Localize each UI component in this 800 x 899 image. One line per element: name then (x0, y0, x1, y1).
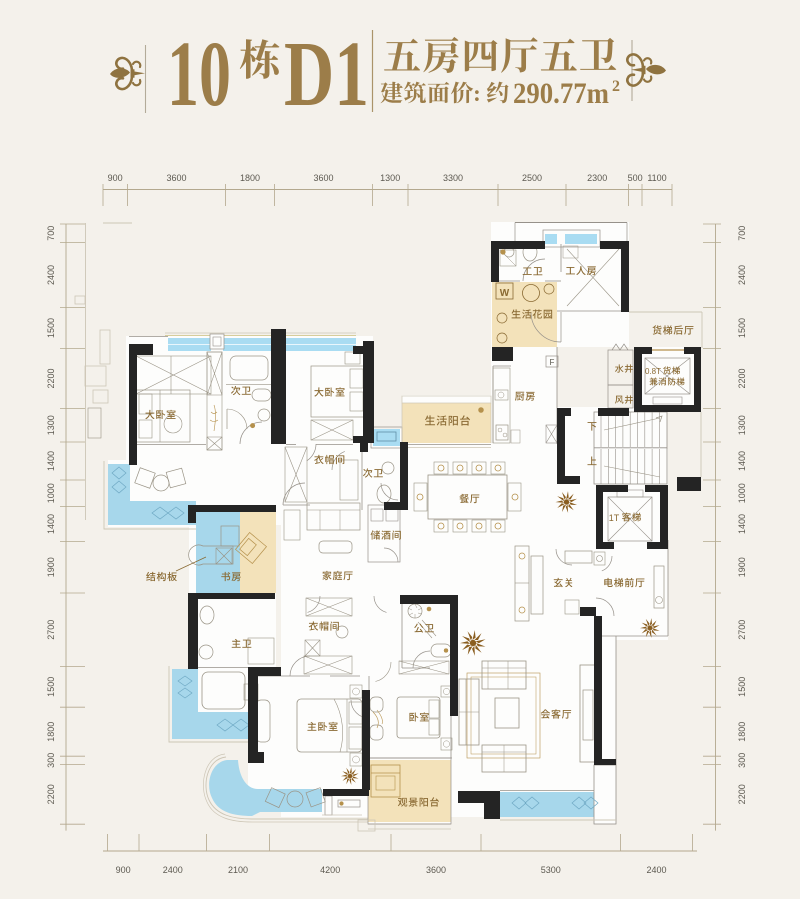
svg-text:1800: 1800 (737, 722, 747, 742)
svg-text:290.77m: 290.77m (513, 77, 609, 110)
svg-text:1300: 1300 (380, 173, 400, 183)
svg-text::: : (473, 81, 481, 106)
svg-text:1300: 1300 (46, 415, 56, 435)
svg-text:2200: 2200 (46, 784, 56, 804)
svg-text:2400: 2400 (163, 865, 183, 875)
svg-text:1T: 1T (609, 513, 620, 523)
svg-text:1500: 1500 (737, 318, 747, 338)
svg-text:2700: 2700 (737, 620, 747, 640)
svg-text:900: 900 (116, 865, 131, 875)
svg-text:3600: 3600 (313, 173, 333, 183)
svg-text:1500: 1500 (46, 318, 56, 338)
svg-text:4200: 4200 (320, 865, 340, 875)
svg-text:5300: 5300 (541, 865, 561, 875)
svg-text:2: 2 (612, 78, 620, 95)
svg-text:2200: 2200 (737, 368, 747, 388)
svg-text:1000: 1000 (737, 483, 747, 503)
svg-text:500: 500 (628, 173, 643, 183)
svg-text:700: 700 (46, 226, 56, 241)
svg-text:900: 900 (108, 173, 123, 183)
svg-text:3300: 3300 (443, 173, 463, 183)
svg-text:300: 300 (737, 753, 747, 768)
svg-text:W: W (500, 288, 510, 299)
svg-text:2400: 2400 (646, 865, 666, 875)
svg-text:3600: 3600 (166, 173, 186, 183)
svg-text:1100: 1100 (647, 173, 666, 183)
svg-text:700: 700 (737, 226, 747, 241)
svg-text:D1: D1 (284, 23, 369, 126)
svg-text:1500: 1500 (737, 677, 747, 697)
svg-text:2400: 2400 (737, 265, 747, 285)
svg-text:1500: 1500 (46, 677, 56, 697)
svg-text:2200: 2200 (737, 784, 747, 804)
svg-text:1900: 1900 (46, 557, 56, 577)
svg-text:0.8T: 0.8T (645, 367, 661, 376)
svg-text:1800: 1800 (46, 722, 56, 742)
svg-text:1400: 1400 (737, 514, 747, 534)
svg-text:10: 10 (167, 23, 231, 126)
svg-text:2500: 2500 (522, 173, 542, 183)
svg-text:2100: 2100 (228, 865, 248, 875)
svg-text:3600: 3600 (426, 865, 446, 875)
svg-text:1900: 1900 (737, 557, 747, 577)
svg-text:1400: 1400 (737, 451, 747, 471)
svg-text:1000: 1000 (46, 483, 56, 503)
svg-text:1800: 1800 (240, 173, 260, 183)
svg-text:1300: 1300 (737, 415, 747, 435)
svg-text:F: F (550, 358, 555, 367)
svg-text:1400: 1400 (46, 451, 56, 471)
svg-text:300: 300 (46, 753, 56, 768)
svg-text:1400: 1400 (46, 514, 56, 534)
svg-text:2700: 2700 (46, 620, 56, 640)
svg-text:2400: 2400 (46, 265, 56, 285)
svg-text:2300: 2300 (587, 173, 607, 183)
svg-text:2200: 2200 (46, 368, 56, 388)
